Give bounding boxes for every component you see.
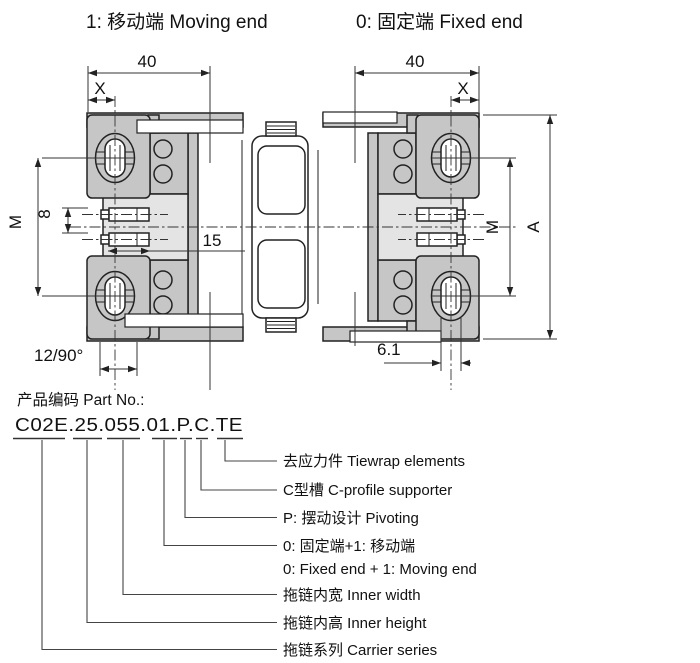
dim-x-right: X [457,79,468,98]
dim-a: A [524,221,543,233]
callout-tiewrap: 去应力件 Tiewrap elements [283,452,465,470]
link-window-bottom [258,240,305,308]
cable-carrier-drawing: 1: 移动端 Moving end 0: 固定端 Fixed end [0,0,700,663]
callout-c-profile: C型槽 C-profile supporter [283,482,452,499]
callout-inner-height: 拖链内高 Inner height [283,615,427,632]
callout-pivoting: P: 摆动设计 Pivoting [283,510,419,527]
dim-m-left: M [6,215,25,229]
part-no-heading: 产品编码 Part No.: [17,391,144,409]
dim-15: 15 [203,231,222,250]
dim-8: 8 [35,209,54,218]
dim-40-right: 40 [406,52,425,71]
label-fixed-end: 0: 固定端 Fixed end [356,11,523,33]
link-window-top [258,146,305,214]
dim-12-90: 12/90° [34,346,83,365]
dim-6-1: 6.1 [377,340,401,359]
callout-end-type-en: 0: Fixed end + 1: Moving end [283,561,477,578]
callout-carrier-series: 拖链系列 Carrier series [283,642,437,659]
dim-x-left: X [94,79,105,98]
dim-40-left: 40 [138,52,157,71]
callout-end-type-zh: 0: 固定端+1: 移动端 [283,538,415,555]
dim-m-right: M [483,220,502,234]
callout-inner-width: 拖链内宽 Inner width [283,587,421,604]
code-leader-lines [42,440,277,650]
technical-drawing-page: 1: 移动端 Moving end 0: 固定端 Fixed end [0,0,700,663]
label-moving-end: 1: 移动端 Moving end [86,11,268,33]
part-number-section: 产品编码 Part No.: C02E.25.055.01.P.C.TE 去应力… [13,391,477,659]
part-no-code: C02E.25.055.01.P.C.TE [15,415,243,435]
